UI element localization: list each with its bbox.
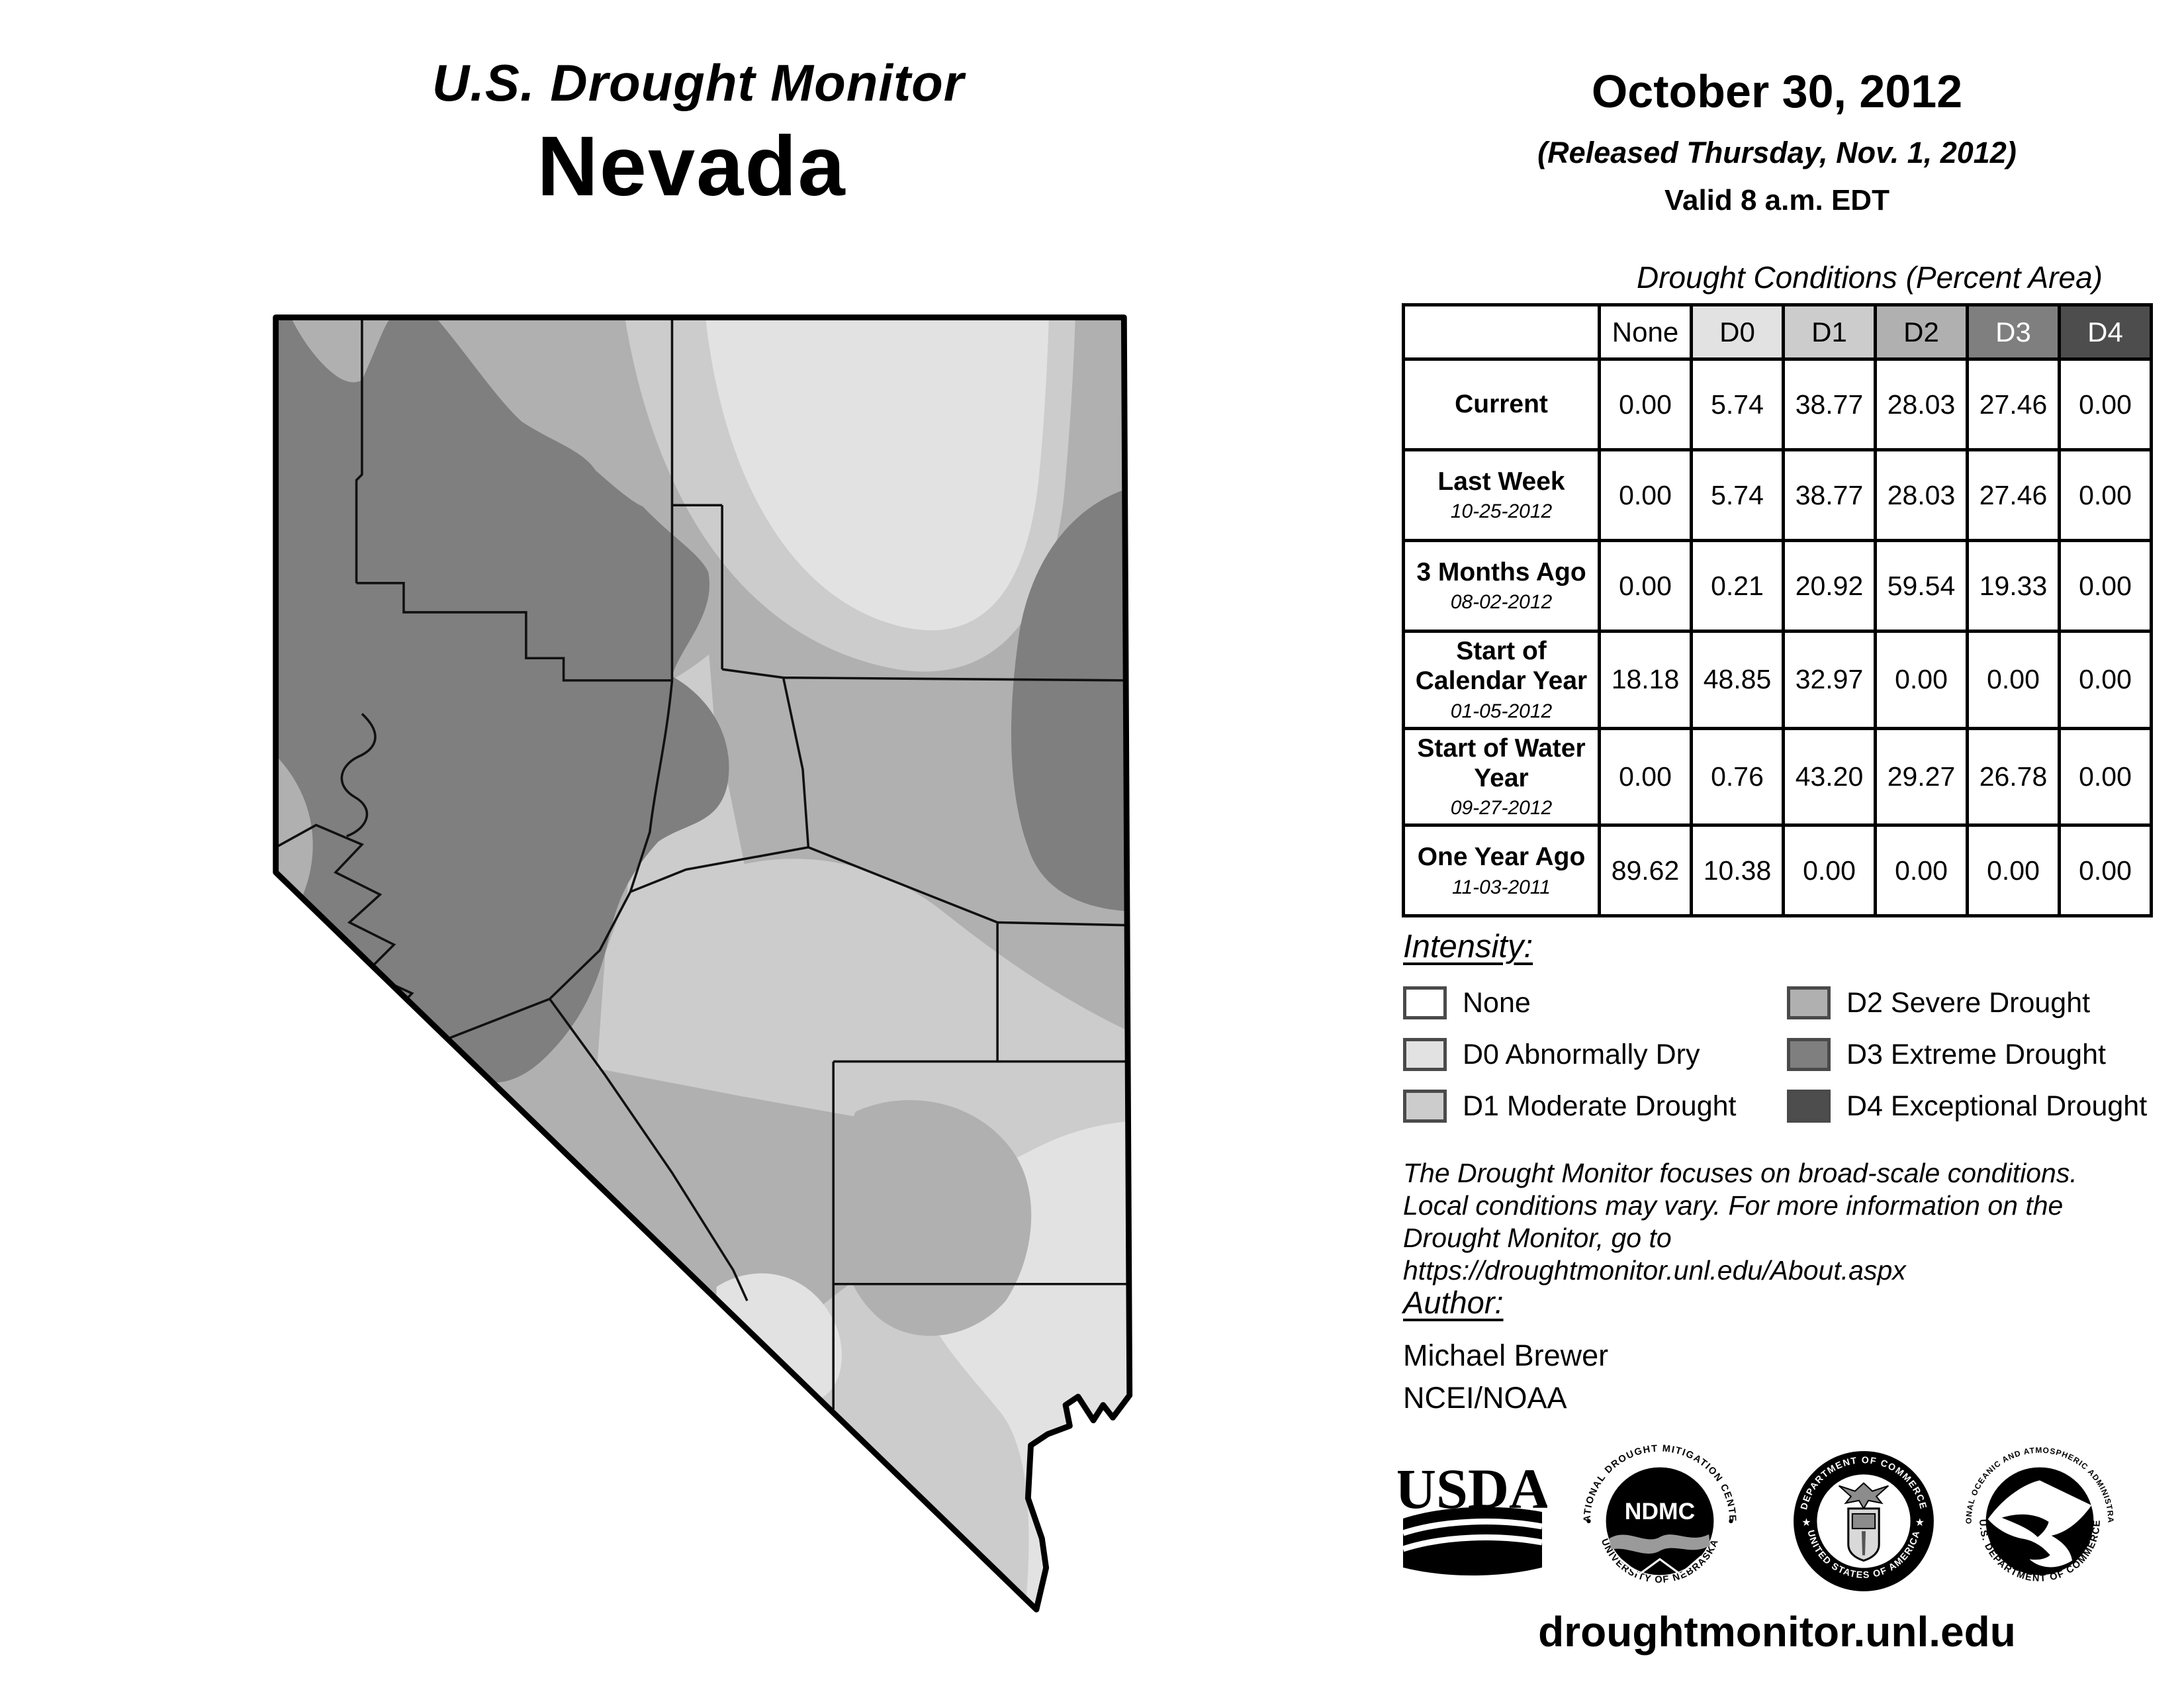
doc-star-left: ★ [1801, 1517, 1811, 1528]
table-row-one-year-ago: One Year Ago 11-03-2011 89.62 10.38 0.00… [1404, 825, 2152, 916]
report-date: October 30, 2012 [1403, 65, 2151, 118]
row-date: 09-27-2012 [1408, 797, 1595, 820]
department-of-commerce-seal: DEPARTMENT OF COMMERCE UNITED STATES OF … [1787, 1444, 1940, 1598]
legend-swatch-d2 [1787, 986, 1831, 1019]
value-cell: 0.00 [1968, 825, 2060, 916]
state-name-title: Nevada [258, 118, 1125, 215]
value-cell: 89.62 [1600, 825, 1692, 916]
legend-swatch-d0 [1403, 1038, 1447, 1071]
disclaimer-line-1: The Drought Monitor focuses on broad-sca… [1403, 1157, 2171, 1190]
row-label: Start of Calendar Year [1408, 637, 1595, 696]
value-cell: 19.33 [1968, 541, 2060, 632]
doc-star-right: ★ [1915, 1517, 1925, 1528]
value-cell: 43.20 [1784, 728, 1876, 825]
value-cell: 0.00 [1876, 825, 1968, 916]
legend-item-d1: D1 Moderate Drought [1403, 1080, 1737, 1132]
row-label: 3 Months Ago [1408, 558, 1595, 588]
row-date: 01-05-2012 [1408, 700, 1595, 723]
report-title: U.S. Drought Monitor [258, 53, 1138, 113]
usda-logo: USDA [1398, 1462, 1547, 1587]
author-name: Michael Brewer [1403, 1338, 1608, 1373]
author-heading: Author: [1403, 1284, 1504, 1321]
drought-report-page: U.S. Drought Monitor Nevada [0, 0, 2184, 1688]
table-corner-cell [1404, 305, 1600, 359]
value-cell: 5.74 [1692, 359, 1784, 450]
value-cell: 59.54 [1876, 541, 1968, 632]
table-row-last-week: Last Week 10-25-2012 0.00 5.74 38.77 28.… [1404, 450, 2152, 541]
value-cell: 0.00 [1784, 825, 1876, 916]
value-cell: 0.00 [1600, 541, 1692, 632]
legend-label: D0 Abnormally Dry [1463, 1039, 1700, 1071]
col-header-d3: D3 [1968, 305, 2060, 359]
table-row-start-water-year: Start of Water Year 09-27-2012 0.00 0.76… [1404, 728, 2152, 825]
value-cell: 27.46 [1968, 359, 2060, 450]
noaa-logo: NATIONAL OCEANIC AND ATMOSPHERIC ADMINIS… [1960, 1442, 2119, 1601]
value-cell: 5.74 [1692, 450, 1784, 541]
legend-swatch-d1 [1403, 1090, 1447, 1123]
noaa-wordmark: NOAA [2013, 1489, 2063, 1513]
intensity-heading: Intensity: [1403, 928, 1533, 965]
legend-column-left: None D0 Abnormally Dry D1 Moderate Droug… [1403, 977, 1737, 1132]
legend-swatch-d4 [1787, 1090, 1831, 1123]
disclaimer-line-2: Local conditions may vary. For more info… [1403, 1190, 2171, 1222]
value-cell: 0.00 [2060, 359, 2152, 450]
value-cell: 48.85 [1692, 632, 1784, 729]
value-cell: 0.00 [2060, 728, 2152, 825]
value-cell: 0.00 [1968, 632, 2060, 729]
disclaimer-line-3: Drought Monitor, go to https://droughtmo… [1403, 1222, 2171, 1287]
nevada-drought-map [255, 297, 1145, 1632]
legend-item-d2: D2 Severe Drought [1787, 977, 2147, 1029]
disclaimer-text: The Drought Monitor focuses on broad-sca… [1403, 1157, 2171, 1287]
col-header-d0: D0 [1692, 305, 1784, 359]
value-cell: 0.00 [1600, 359, 1692, 450]
table-row-3-months-ago: 3 Months Ago 08-02-2012 0.00 0.21 20.92 … [1404, 541, 2152, 632]
valid-time: Valid 8 a.m. EDT [1403, 184, 2151, 217]
legend-item-none: None [1403, 977, 1737, 1029]
legend-swatch-d3 [1787, 1038, 1831, 1071]
value-cell: 0.00 [1600, 728, 1692, 825]
row-date: 10-25-2012 [1408, 500, 1595, 523]
value-cell: 0.21 [1692, 541, 1784, 632]
legend-swatch-none [1403, 986, 1447, 1019]
value-cell: 10.38 [1692, 825, 1784, 916]
col-header-d1: D1 [1784, 305, 1876, 359]
col-header-none: None [1600, 305, 1692, 359]
value-cell: 0.00 [2060, 541, 2152, 632]
website-url: droughtmonitor.unl.edu [1403, 1607, 2151, 1656]
value-cell: 0.00 [1876, 632, 1968, 729]
release-date: (Released Thursday, Nov. 1, 2012) [1403, 136, 2151, 170]
value-cell: 38.77 [1784, 359, 1876, 450]
legend-column-right: D2 Severe Drought D3 Extreme Drought D4 … [1787, 977, 2147, 1132]
value-cell: 38.77 [1784, 450, 1876, 541]
legend-label: None [1463, 987, 1531, 1019]
value-cell: 20.92 [1784, 541, 1876, 632]
value-cell: 32.97 [1784, 632, 1876, 729]
row-label: Start of Water Year [1408, 734, 1595, 794]
value-cell: 29.27 [1876, 728, 1968, 825]
legend-item-d0: D0 Abnormally Dry [1403, 1029, 1737, 1080]
legend-item-d3: D3 Extreme Drought [1787, 1029, 2147, 1080]
drought-conditions-table: None D0 D1 D2 D3 D4 Current 0.00 5.74 38… [1402, 303, 2153, 917]
value-cell: 0.00 [2060, 450, 2152, 541]
value-cell: 0.00 [2060, 825, 2152, 916]
value-cell: 26.78 [1968, 728, 2060, 825]
legend-label: D1 Moderate Drought [1463, 1090, 1737, 1123]
value-cell: 0.00 [1600, 450, 1692, 541]
row-label: Last Week [1408, 467, 1595, 497]
legend-label: D3 Extreme Drought [1846, 1039, 2106, 1071]
legend-label: D2 Severe Drought [1846, 987, 2090, 1019]
value-cell: 0.00 [2060, 632, 2152, 729]
value-cell: 28.03 [1876, 450, 1968, 541]
row-date: 08-02-2012 [1408, 591, 1595, 614]
table-row-start-calendar-year: Start of Calendar Year 01-05-2012 18.18 … [1404, 632, 2152, 729]
value-cell: 27.46 [1968, 450, 2060, 541]
ndmc-logo: NATIONAL DROUGHT MITIGATION CENTER UNIVE… [1580, 1442, 1739, 1601]
col-header-d2: D2 [1876, 305, 1968, 359]
legend-item-d4: D4 Exceptional Drought [1787, 1080, 2147, 1132]
value-cell: 0.76 [1692, 728, 1784, 825]
legend-label: D4 Exceptional Drought [1846, 1090, 2147, 1123]
value-cell: 28.03 [1876, 359, 1968, 450]
row-date: 11-03-2011 [1408, 876, 1595, 899]
author-organization: NCEI/NOAA [1403, 1381, 1567, 1415]
row-label: One Year Ago [1408, 843, 1595, 872]
row-label: Current [1408, 390, 1595, 420]
value-cell: 18.18 [1600, 632, 1692, 729]
ndmc-wordmark: NDMC [1625, 1498, 1695, 1524]
col-header-d4: D4 [2060, 305, 2152, 359]
table-title: Drought Conditions (Percent Area) [1588, 259, 2151, 295]
table-row-current: Current 0.00 5.74 38.77 28.03 27.46 0.00 [1404, 359, 2152, 450]
